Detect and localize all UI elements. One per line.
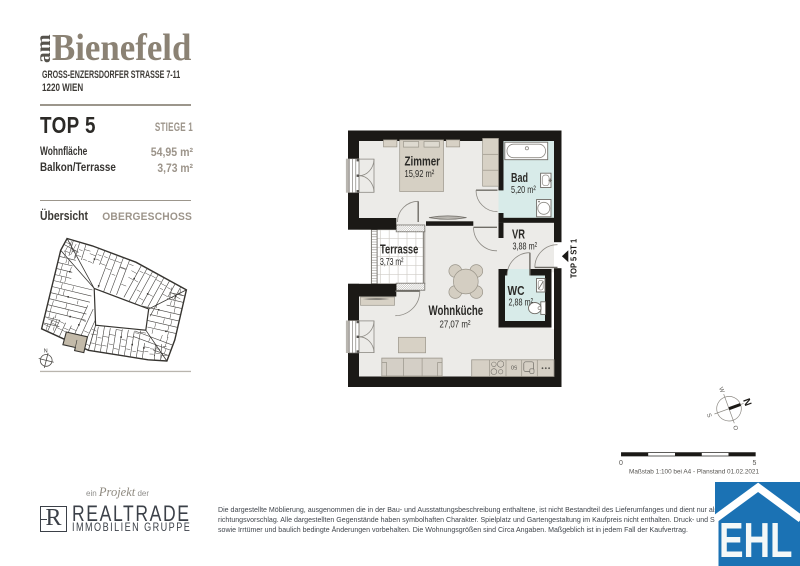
svg-text:W: W (717, 387, 725, 395)
svg-text:3,73 m²: 3,73 m² (380, 256, 404, 268)
svg-text:27,07 m²: 27,07 m² (440, 319, 471, 331)
svg-text:Bad: Bad (511, 170, 528, 185)
svg-text:Terrasse: Terrasse (380, 242, 418, 257)
svg-text:TOP 5 ST 1: TOP 5 ST 1 (568, 239, 578, 279)
svg-text:Zimmer: Zimmer (405, 154, 441, 169)
svg-text:5: 5 (753, 460, 757, 467)
svg-text:Wohnküche: Wohnküche (429, 303, 484, 318)
svg-text:15,92 m²: 15,92 m² (405, 168, 435, 180)
svg-text:N: N (740, 397, 753, 408)
svg-text:O: O (731, 425, 738, 432)
svg-text:N: N (44, 349, 48, 355)
svg-text:Maßstab 1:100 bei A4 - Plansta: Maßstab 1:100 bei A4 - Planstand 01.02.2… (629, 469, 759, 476)
svg-text:S: S (705, 413, 712, 419)
svg-text:5,20 m²: 5,20 m² (511, 184, 536, 196)
svg-text:2,88 m²: 2,88 m² (509, 297, 534, 309)
svg-text:0: 0 (619, 460, 623, 467)
svg-text:3,88 m²: 3,88 m² (513, 240, 538, 252)
svg-text:50: 50 (511, 364, 517, 370)
